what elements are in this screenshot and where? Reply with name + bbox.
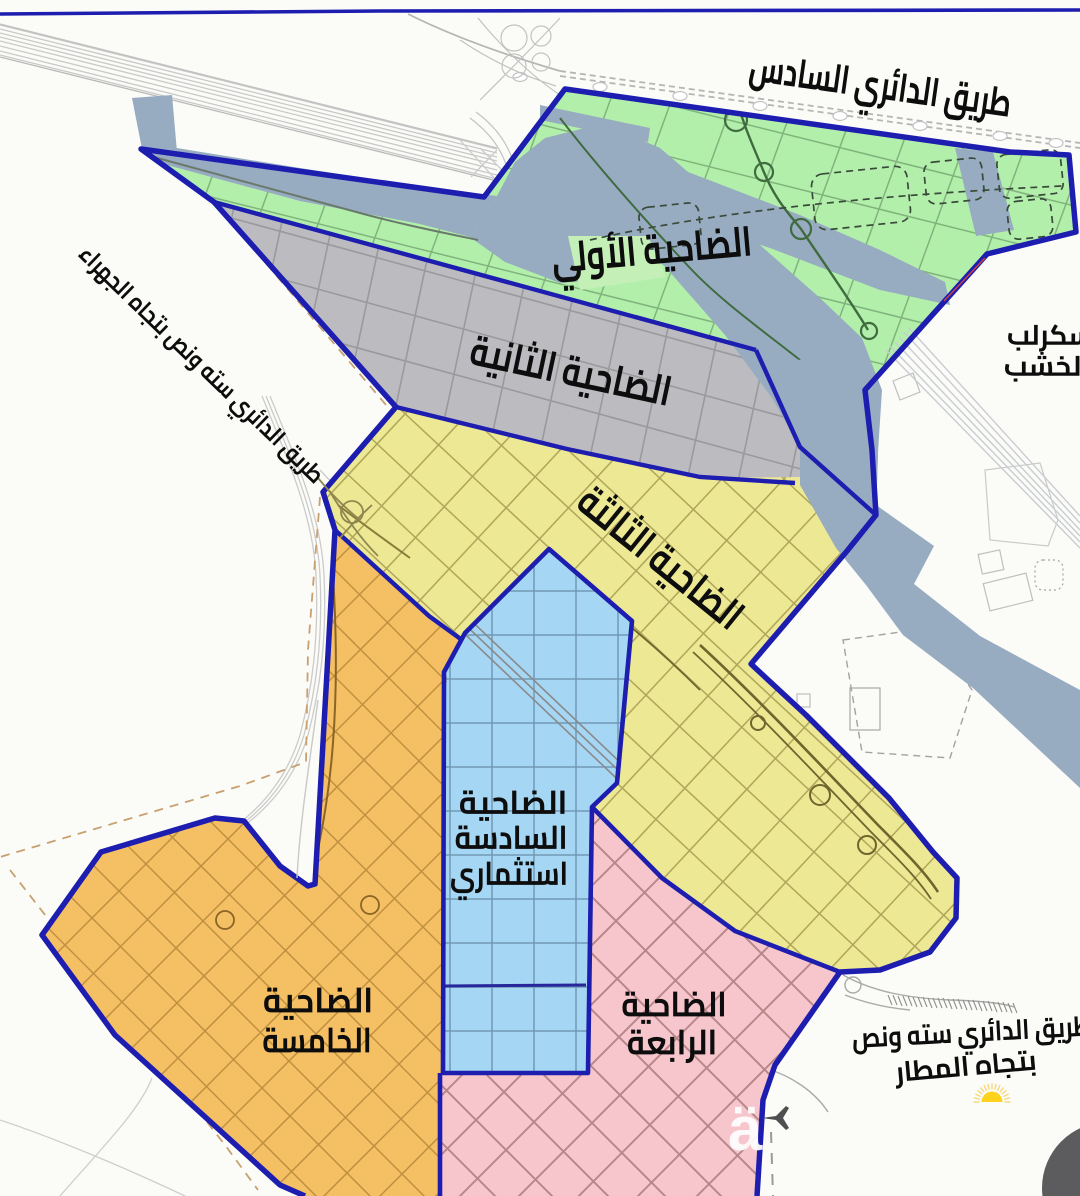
svg-text:ä: ä <box>728 1095 763 1164</box>
